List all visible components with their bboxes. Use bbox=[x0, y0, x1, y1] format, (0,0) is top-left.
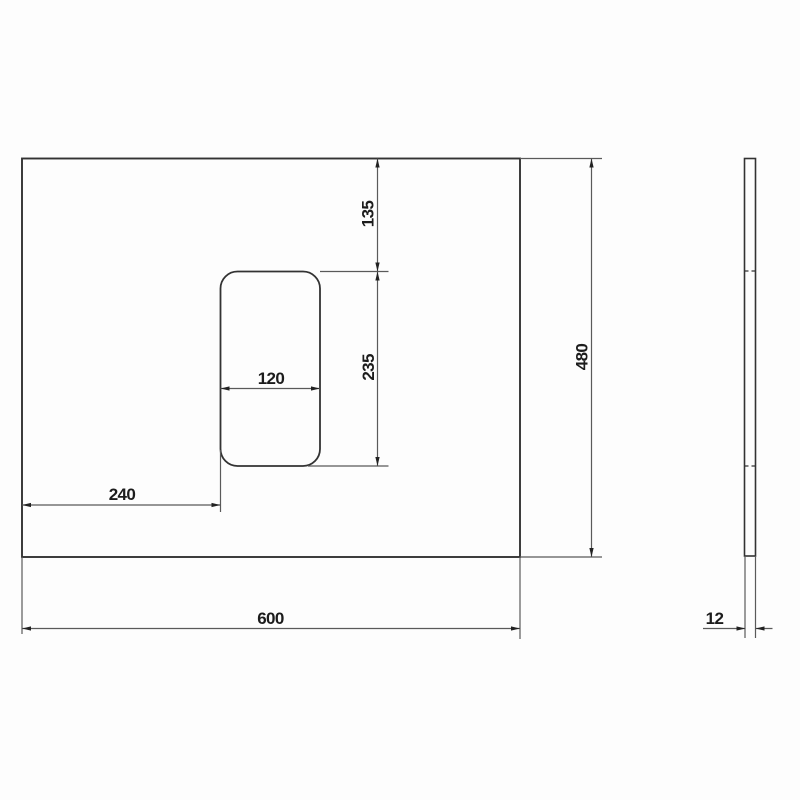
svg-text:600: 600 bbox=[257, 609, 284, 628]
svg-text:120: 120 bbox=[258, 369, 285, 388]
svg-text:135: 135 bbox=[359, 201, 378, 228]
svg-text:12: 12 bbox=[706, 609, 724, 628]
svg-text:480: 480 bbox=[573, 344, 592, 371]
svg-text:235: 235 bbox=[359, 354, 378, 381]
svg-text:240: 240 bbox=[109, 485, 136, 504]
